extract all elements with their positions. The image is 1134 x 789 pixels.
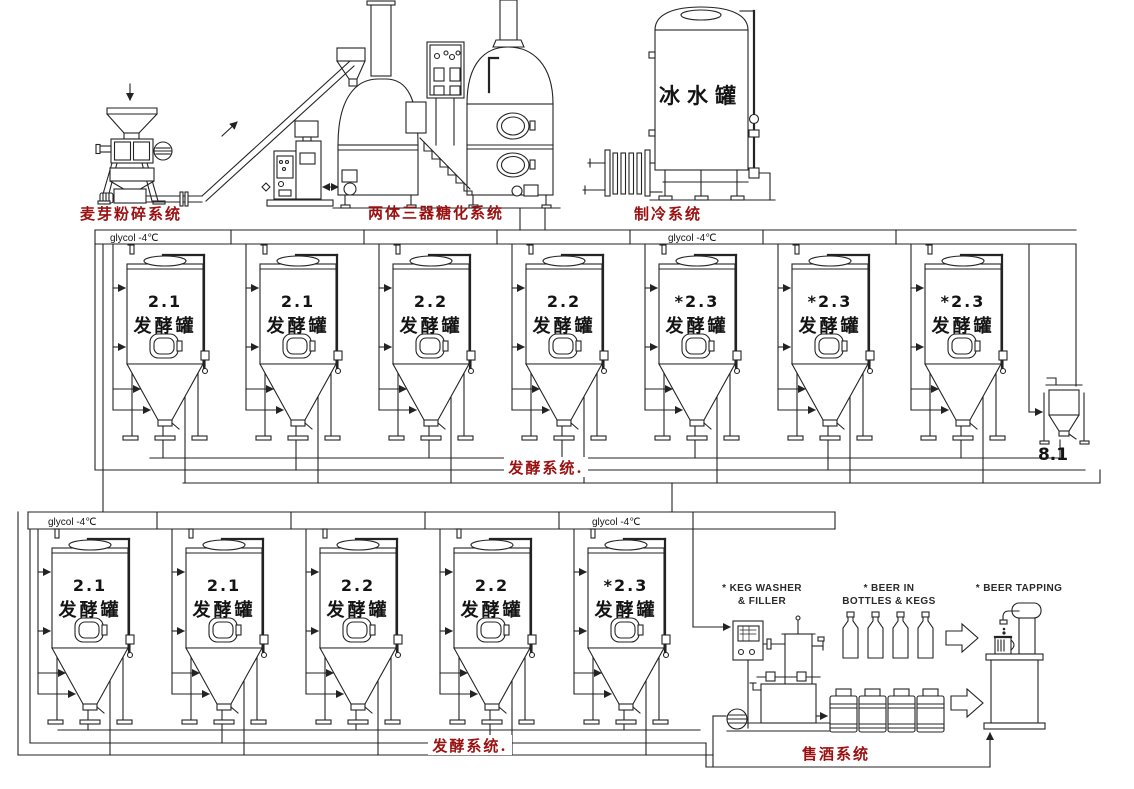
fermentation-row2-tanks: 2.1 发酵罐 2.1 发酵罐 — [38, 529, 670, 755]
keg-icon — [888, 689, 915, 732]
sales-caption: 售酒系统 — [802, 745, 870, 763]
tank-valve-icon — [999, 351, 1007, 360]
beer-tapping — [984, 603, 1045, 729]
keg-washer-label-1: * KEG WASHER — [722, 583, 802, 594]
beer-kegs — [830, 689, 944, 732]
fermenter-tank: *2.3 发酵罐 — [574, 529, 670, 755]
tank-number: 2.1 — [73, 576, 107, 595]
keg-washer — [727, 616, 834, 731]
sales-system: * KEG WASHER & FILLER * BEER IN BOTTLES … — [722, 583, 1062, 763]
fermenter-tank: 2.2 发酵罐 — [512, 244, 608, 483]
tank-valve-icon — [733, 351, 741, 360]
tank-name: 发酵罐 — [326, 599, 390, 621]
flow-arrow-icon — [946, 624, 978, 652]
chiller-radiator — [583, 150, 662, 196]
bottle-icon — [868, 612, 883, 658]
malt-mill — [96, 84, 202, 206]
yeast-tank-label: 8.1 — [1038, 445, 1068, 465]
flow-arrow-icon — [951, 689, 983, 717]
keg-icon — [830, 689, 857, 732]
diagram-canvas: 麦芽粉碎系统 — [0, 0, 1134, 789]
fermenter-tank: *2.3 发酵罐 — [911, 244, 1007, 483]
fermenter-tank: *2.3 发酵罐 — [645, 244, 741, 483]
fermentation-row1-tanks: 2.1 发酵罐 2.1 发酵罐 — [113, 244, 1007, 483]
bottle-icon — [843, 612, 858, 658]
tank-name: 发酵罐 — [594, 599, 658, 621]
tank-valve-icon — [394, 635, 402, 644]
fermenter-tank: 2.2 发酵罐 — [379, 244, 475, 483]
glycol-label: glycol -4℃ — [110, 233, 158, 244]
tank-valve-icon — [126, 635, 134, 644]
beer-bottles — [843, 612, 933, 658]
tank-number: 2.2 — [414, 292, 448, 311]
tank-valve-icon — [528, 635, 536, 644]
tank-number: *2.3 — [675, 292, 720, 311]
tank-valve-icon — [467, 351, 475, 360]
beer-in-label-1: * BEER IN — [864, 583, 915, 594]
beer-in-label-2: BOTTLES & KEGS — [842, 596, 935, 607]
tank-name: 发酵罐 — [399, 315, 463, 337]
bottle-icon — [918, 612, 933, 658]
tank-valve-icon — [866, 351, 874, 360]
tank-name: 发酵罐 — [266, 315, 330, 337]
tank-name: 发酵罐 — [58, 599, 122, 621]
tank-valve-icon — [260, 635, 268, 644]
tank-name: 发酵罐 — [192, 599, 256, 621]
fermenter-tank: *2.3 发酵罐 — [778, 244, 874, 483]
fermenter-tank: 2.1 发酵罐 — [38, 529, 134, 755]
glycol-label: glycol -4℃ — [592, 517, 640, 528]
fermenter-tank: 2.1 发酵罐 — [172, 529, 268, 755]
beer-tapping-label: * BEER TAPPING — [976, 583, 1063, 594]
tank-valve-icon — [201, 351, 209, 360]
tank-number: 2.1 — [207, 576, 241, 595]
beer-mug-icon — [995, 637, 1011, 654]
tank-valve-icon — [334, 351, 342, 360]
tank-name: 发酵罐 — [931, 315, 995, 337]
tank-valve-icon — [600, 351, 608, 360]
fermentation-row1-caption: 发酵系统. — [507, 459, 583, 477]
tank-number: 2.1 — [148, 292, 182, 311]
glycol-label: glycol -4℃ — [668, 233, 716, 244]
bottle-icon — [893, 612, 908, 658]
tank-name: 发酵罐 — [460, 599, 524, 621]
ice-water-tank-label: 冰水罐 — [659, 83, 743, 108]
tank-number: 2.2 — [547, 292, 581, 311]
ice-water-tank: 冰水罐 — [649, 7, 775, 200]
tank-number: 2.2 — [475, 576, 509, 595]
fermentation-row2-caption: 发酵系统. — [431, 737, 507, 755]
tank-number: 2.1 — [281, 292, 315, 311]
brewery-flow-diagram: 麦芽粉碎系统 — [0, 0, 1134, 789]
brewhouse — [333, 0, 560, 230]
fermenter-tank: 2.2 发酵罐 — [440, 529, 536, 755]
glycol-label: glycol -4℃ — [48, 517, 96, 528]
cooling-caption: 制冷系统 — [634, 205, 702, 223]
tank-name: 发酵罐 — [798, 315, 862, 337]
tank-number: *2.3 — [941, 292, 986, 311]
tank-name: 发酵罐 — [665, 315, 729, 337]
fermenter-tank: 2.1 发酵罐 — [113, 244, 209, 483]
control-panel — [427, 42, 464, 98]
tank-name: 发酵罐 — [532, 315, 596, 337]
fermenter-tank: 2.1 发酵罐 — [246, 244, 342, 483]
brewhouse-caption: 两体三器糖化系统 — [368, 204, 504, 222]
keg-washer-label-2: & FILLER — [738, 596, 787, 607]
tank-number: *2.3 — [604, 576, 649, 595]
tank-number: *2.3 — [808, 292, 853, 311]
fermenter-tank: 2.2 发酵罐 — [306, 529, 402, 755]
keg-icon — [917, 689, 944, 732]
yeast-tank: 8.1 — [1038, 378, 1089, 465]
tap-faucet-icon — [1000, 620, 1007, 624]
tank-name: 发酵罐 — [133, 315, 197, 337]
tank-number: 2.2 — [341, 576, 375, 595]
pump-station — [262, 121, 338, 206]
keg-icon — [859, 689, 886, 732]
tank-valve-icon — [662, 635, 670, 644]
malt-mill-caption: 麦芽粉碎系统 — [80, 205, 182, 223]
